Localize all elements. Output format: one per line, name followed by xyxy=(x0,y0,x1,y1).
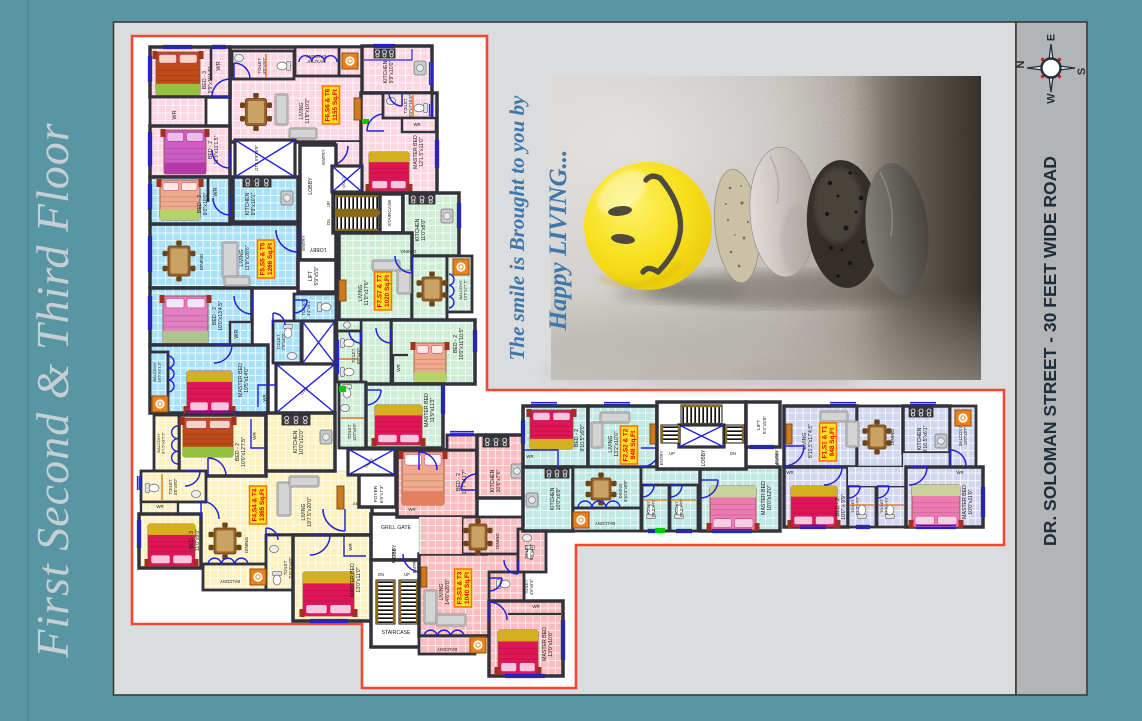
svg-text:WR: WR xyxy=(526,454,533,459)
svg-text:DUCT: DUCT xyxy=(341,176,346,188)
svg-text:10′6″x7′6″: 10′6″x7′6″ xyxy=(496,470,502,493)
svg-text:Happy LIVING...: Happy LIVING... xyxy=(545,150,572,332)
svg-text:14′6″x20′0″: 14′6″x20′0″ xyxy=(445,579,451,605)
svg-text:E: E xyxy=(1046,34,1058,41)
svg-text:9′9″x10′0″: 9′9″x10′0″ xyxy=(389,61,395,84)
svg-text:10′6″x3′7.5″: 10′6″x3′7.5″ xyxy=(463,279,468,300)
svg-text:1155 Sq.Ft: 1155 Sq.Ft xyxy=(332,88,339,120)
svg-text:DINING: DINING xyxy=(199,253,205,270)
svg-text:848 Sq.Ft: 848 Sq.Ft xyxy=(829,427,836,456)
svg-text:7′10.5″x4′0″: 7′10.5″x4′0″ xyxy=(288,557,293,579)
svg-text:BED - 3: BED - 3 xyxy=(197,195,203,213)
svg-text:LOBBY: LOBBY xyxy=(308,177,314,195)
svg-text:9′9″x10′1″: 9′9″x10′1″ xyxy=(251,193,257,216)
svg-text:KITCHEN: KITCHEN xyxy=(415,218,421,241)
svg-text:LIVING: LIVING xyxy=(802,432,808,449)
svg-text:5′9″x5′9″: 5′9″x5′9″ xyxy=(314,266,320,285)
svg-text:MASTER BED: MASTER BED xyxy=(238,363,244,397)
svg-text:F7,S7 & T7: F7,S7 & T7 xyxy=(377,274,384,307)
svg-text:9′6″x2′7.5″: 9′6″x2′7.5″ xyxy=(306,59,326,64)
svg-text:6′7.5″x4′0″: 6′7.5″x4′0″ xyxy=(651,498,656,517)
svg-text:10′0″x11′0″: 10′0″x11′0″ xyxy=(968,489,974,514)
svg-text:BED - 2: BED - 2 xyxy=(235,443,241,461)
svg-text:MASTER BED: MASTER BED xyxy=(350,563,356,597)
svg-text:F2,S2 & T2: F2,S2 & T2 xyxy=(623,428,630,461)
svg-text:KITCHEN: KITCHEN xyxy=(917,427,923,450)
svg-text:LIFT: LIFT xyxy=(308,271,314,281)
svg-text:6′7.5″x4′0″: 6′7.5″x4′0″ xyxy=(855,496,860,515)
svg-text:ENTRY: ENTRY xyxy=(301,235,306,251)
svg-text:4′0″x9′0″: 4′0″x9′0″ xyxy=(173,478,178,495)
svg-text:BED - 3: BED - 3 xyxy=(202,71,208,89)
svg-text:9′10.5″x9′0″: 9′10.5″x9′0″ xyxy=(580,424,586,451)
svg-text:STAIRCASE: STAIRCASE xyxy=(381,630,411,636)
svg-text:WR: WR xyxy=(408,507,415,512)
svg-text:LIVING: LIVING xyxy=(301,503,307,520)
svg-text:ENTRY: ENTRY xyxy=(775,451,780,466)
svg-text:10′0″ x 9′9″: 10′0″ x 9′9″ xyxy=(841,494,847,520)
svg-text:WR: WR xyxy=(252,431,257,439)
svg-text:BED - 3: BED - 3 xyxy=(189,531,195,549)
svg-text:DINING: DINING xyxy=(244,537,249,554)
svg-text:KITCHEN: KITCHEN xyxy=(245,192,251,215)
svg-text:UP: UP xyxy=(669,451,675,456)
svg-text:11′0″x4′0″: 11′0″x4′0″ xyxy=(352,423,357,441)
svg-text:1266 Sq.Ft: 1266 Sq.Ft xyxy=(267,242,274,275)
svg-text:10′0″x3′7″: 10′0″x3′7″ xyxy=(963,426,968,445)
svg-text:6′7.5″x4′0″: 6′7.5″x4′0″ xyxy=(884,496,889,515)
svg-text:6′10.5″x9′9″: 6′10.5″x9′9″ xyxy=(623,480,628,502)
svg-text:BALCONY: BALCONY xyxy=(595,521,615,526)
svg-text:F4,S4 & T4: F4,S4 & T4 xyxy=(252,488,259,521)
svg-text:BED - 2: BED - 2 xyxy=(453,335,459,353)
svg-text:MASTER BED: MASTER BED xyxy=(962,485,968,519)
svg-text:4′6″x6′3″: 4′6″x6′3″ xyxy=(529,579,534,595)
svg-text:First Second & Third Floor: First Second & Third Floor xyxy=(27,122,78,659)
svg-text:DR. SOLOMAN STREET - 30 FEET W: DR. SOLOMAN STREET - 30 FEET WIDE ROAD xyxy=(1040,156,1060,546)
svg-text:FOYER: FOYER xyxy=(373,485,379,502)
svg-text:11′8″x28′6″: 11′8″x28′6″ xyxy=(245,245,251,270)
svg-text:DN: DN xyxy=(730,451,736,456)
svg-text:10′5″x3′1.5″: 10′5″x3′1.5″ xyxy=(157,361,162,382)
svg-text:9′10.5″x6′1″: 9′10.5″x6′1″ xyxy=(923,425,929,452)
svg-text:S: S xyxy=(1076,68,1088,75)
svg-text:DN: DN xyxy=(378,572,384,577)
svg-text:1365 Sq.Ft: 1365 Sq.Ft xyxy=(259,488,266,521)
svg-text:WR: WR xyxy=(786,470,793,475)
svg-text:BED - 2: BED - 2 xyxy=(574,429,580,447)
svg-text:ENTRY: ENTRY xyxy=(321,149,326,165)
svg-text:OTS 5′9″x6′9″: OTS 5′9″x6′9″ xyxy=(254,145,259,171)
svg-text:LIFT: LIFT xyxy=(756,420,762,430)
svg-text:13′0″x11′0″: 13′0″x11′0″ xyxy=(356,567,362,592)
svg-text:6′7.5″x4′0″: 6′7.5″x4′0″ xyxy=(679,498,684,517)
svg-text:UP: UP xyxy=(404,572,410,577)
svg-text:8′0″x4′0″: 8′0″x4′0″ xyxy=(356,348,361,364)
svg-text:STAIRCASE: STAIRCASE xyxy=(387,200,393,227)
svg-text:7′9″x4′0″: 7′9″x4′0″ xyxy=(281,333,286,350)
svg-text:LIVING: LIVING xyxy=(239,249,245,266)
svg-text:LOBBY: LOBBY xyxy=(701,449,707,466)
svg-text:KITCHEN: KITCHEN xyxy=(293,430,299,453)
svg-text:10′0″x12′0″: 10′0″x12′0″ xyxy=(767,485,773,511)
svg-text:KITCHEN: KITCHEN xyxy=(550,487,556,510)
svg-text:DINING: DINING xyxy=(890,429,895,446)
svg-text:N: N xyxy=(1015,60,1027,68)
svg-text:MASTER BED: MASTER BED xyxy=(413,135,419,169)
svg-text:LIVING: LIVING xyxy=(299,102,305,119)
svg-text:W: W xyxy=(1046,93,1058,104)
svg-text:WR: WR xyxy=(396,364,401,371)
svg-text:11′0″x9′0″: 11′0″x9′0″ xyxy=(195,529,201,551)
svg-text:F6,S6 & T6: F6,S6 & T6 xyxy=(325,88,332,121)
svg-text:DINING: DINING xyxy=(495,533,500,550)
svg-text:WR: WR xyxy=(216,61,222,70)
svg-text:10′0″x13′4.5″: 10′0″x13′4.5″ xyxy=(218,301,224,331)
svg-text:4′0″x7′10.5″: 4′0″x7′10.5″ xyxy=(408,94,413,117)
svg-text:F3,S3 & T3: F3,S3 & T3 xyxy=(457,571,464,604)
svg-text:9′7.5″x3′7.5″: 9′7.5″x3′7.5″ xyxy=(161,431,166,453)
svg-text:KITCHEN: KITCHEN xyxy=(490,469,496,492)
svg-text:WR: WR xyxy=(413,122,420,127)
svg-text:6′9″x7′3″: 6′9″x7′3″ xyxy=(379,485,385,504)
svg-text:UP: UP xyxy=(326,201,331,207)
svg-text:10′0″x12′7.5″: 10′0″x12′7.5″ xyxy=(241,437,247,467)
svg-text:10′0″x10′0″: 10′0″x10′0″ xyxy=(299,429,305,455)
svg-text:8′10.5″x17′4.5″: 8′10.5″x17′4.5″ xyxy=(808,424,814,458)
svg-text:WR: WR xyxy=(956,470,963,475)
svg-text:LIVING: LIVING xyxy=(358,284,364,301)
svg-text:11′9″x11′3″: 11′9″x11′3″ xyxy=(430,397,436,422)
svg-text:LIVING: LIVING xyxy=(608,435,614,452)
svg-text:F5,S5 & T5: F5,S5 & T5 xyxy=(260,242,267,275)
svg-text:11′8″x19′2″: 11′8″x19′2″ xyxy=(305,98,311,123)
svg-text:BALCONY: BALCONY xyxy=(437,647,457,652)
svg-text:19′7.5″x20′0″: 19′7.5″x20′0″ xyxy=(307,497,313,527)
svg-text:848 Sq.Ft: 848 Sq.Ft xyxy=(630,430,637,459)
svg-text:ENTRY: ENTRY xyxy=(659,451,664,466)
svg-text:WR: WR xyxy=(213,187,219,196)
svg-text:LIVING: LIVING xyxy=(439,583,445,600)
svg-text:DINING: DINING xyxy=(400,249,416,254)
svg-text:13′0″x10′6″: 13′0″x10′6″ xyxy=(548,631,554,657)
svg-text:WR: WR xyxy=(348,543,353,550)
svg-text:ENTRY: ENTRY xyxy=(391,549,396,564)
svg-text:1040 Sq.Ft: 1040 Sq.Ft xyxy=(464,571,471,604)
svg-text:MASTER BED: MASTER BED xyxy=(424,393,430,427)
svg-text:WR: WR xyxy=(532,604,539,609)
svg-text:12′1.5″x11′0″: 12′1.5″x11′0″ xyxy=(419,137,425,167)
svg-text:WR: WR xyxy=(172,110,178,119)
svg-text:13′2″x10′0″: 13′2″x10′0″ xyxy=(614,431,620,457)
svg-text:10′0″x6′0″: 10′0″x6′0″ xyxy=(556,488,562,511)
svg-text:11′0″x17′6″: 11′0″x17′6″ xyxy=(364,280,370,305)
svg-text:1020 Sq.Ft: 1020 Sq.Ft xyxy=(384,274,391,307)
svg-text:BED - 2: BED - 2 xyxy=(212,307,218,325)
svg-text:KITCHEN: KITCHEN xyxy=(383,60,389,83)
svg-text:WR: WR xyxy=(156,504,163,509)
svg-text:WR: WR xyxy=(234,329,240,338)
svg-text:10′5″x14′0″: 10′5″x14′0″ xyxy=(244,367,250,393)
svg-text:MASTER BED: MASTER BED xyxy=(761,481,767,515)
svg-text:MASTER BED: MASTER BED xyxy=(542,627,548,661)
svg-text:WR: WR xyxy=(262,394,267,401)
svg-text:11′0″x8′0″: 11′0″x8′0″ xyxy=(421,219,427,241)
svg-text:BALCONY: BALCONY xyxy=(306,54,326,59)
svg-text:DN: DN xyxy=(326,219,331,225)
svg-text:BED - 2: BED - 2 xyxy=(835,498,841,516)
svg-text:F1,S1 & T1: F1,S1 & T1 xyxy=(822,425,829,458)
svg-text:BALCONY: BALCONY xyxy=(220,579,240,584)
svg-text:10′0″x11′10.5″: 10′0″x11′10.5″ xyxy=(459,328,465,361)
svg-text:The smile is Brought to you by: The smile is Brought to you by xyxy=(505,95,529,361)
svg-text:GRILL GATE: GRILL GATE xyxy=(381,525,412,531)
svg-text:8′6″x4′0″: 8′6″x4′0″ xyxy=(529,544,534,560)
svg-text:5′2″x5′9″: 5′2″x5′9″ xyxy=(762,416,768,435)
svg-text:LOBBY: LOBBY xyxy=(309,246,326,252)
